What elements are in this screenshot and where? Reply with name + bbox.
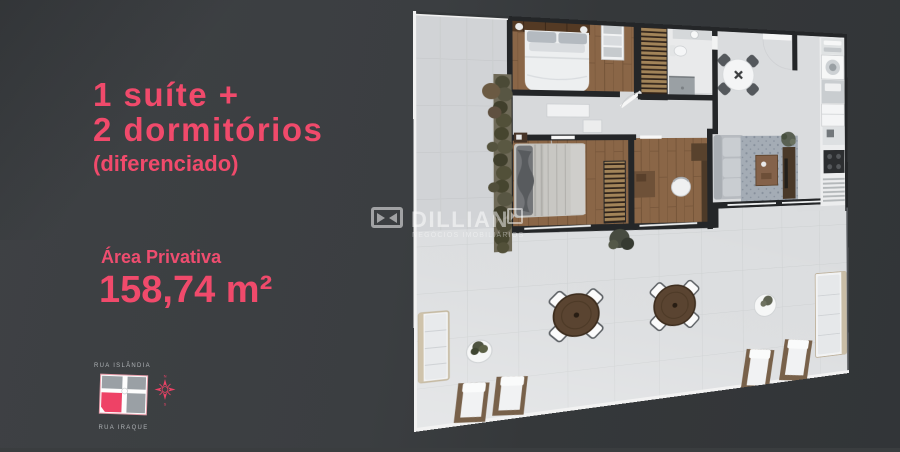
svg-text:RUA IRAQUE: RUA IRAQUE <box>98 425 148 431</box>
svg-text:RUA ISLÂNDIA: RUA ISLÂNDIA <box>94 362 151 369</box>
svg-text:S: S <box>164 401 167 406</box>
svg-text:N: N <box>164 373 167 378</box>
